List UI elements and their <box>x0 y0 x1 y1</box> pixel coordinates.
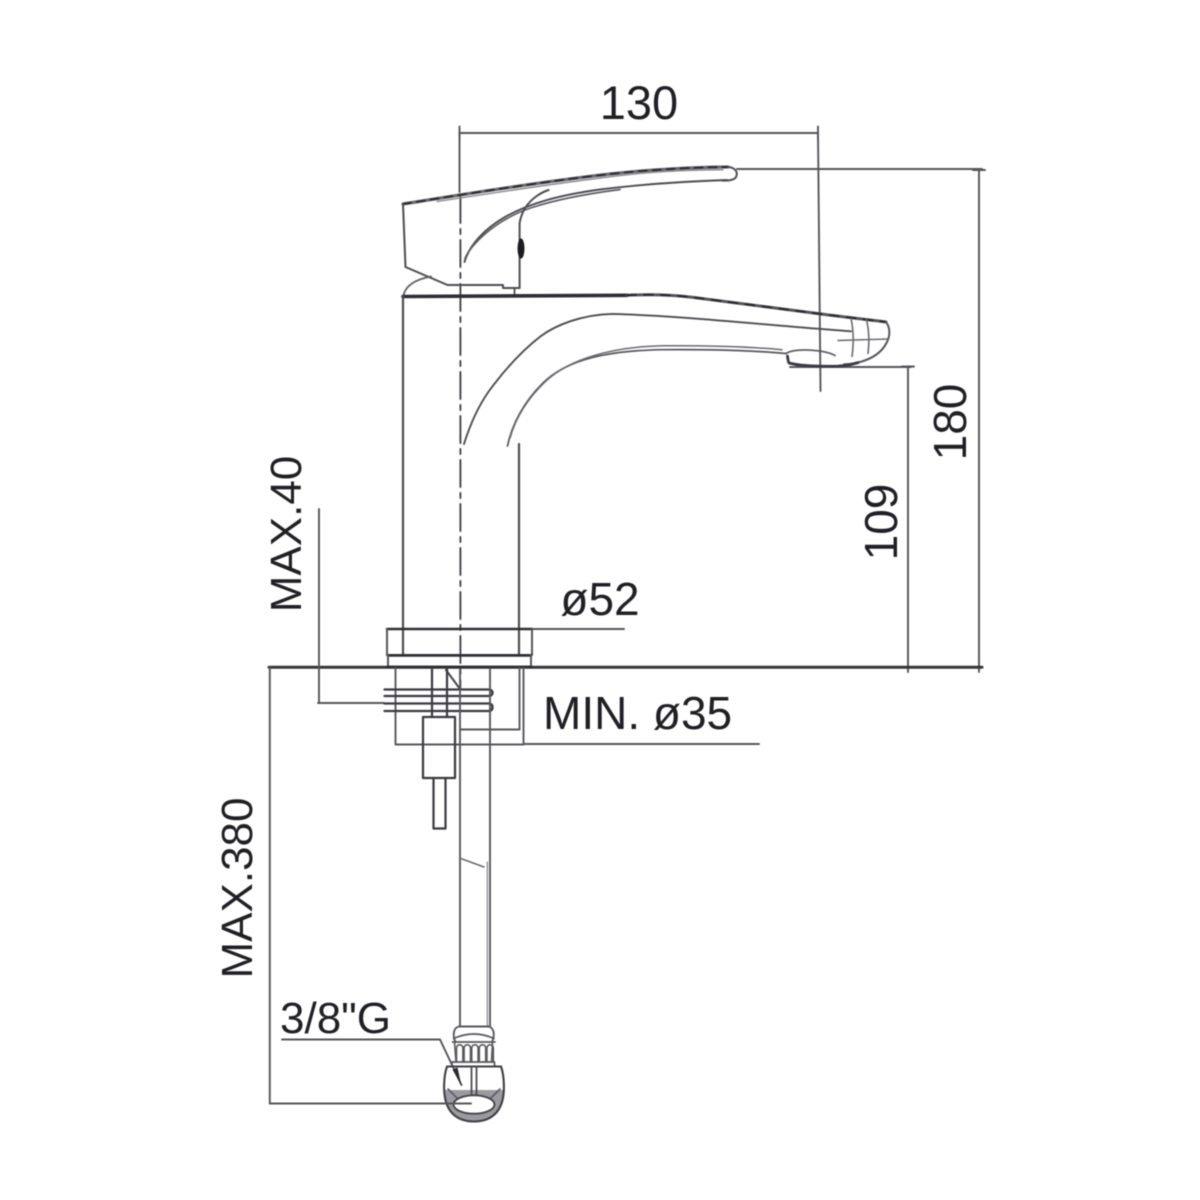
svg-text:109: 109 <box>855 484 907 561</box>
svg-text:MIN. ø35: MIN. ø35 <box>543 687 732 739</box>
svg-text:MAX.40: MAX.40 <box>262 456 311 613</box>
svg-text:3/8"G: 3/8"G <box>280 994 391 1043</box>
svg-text:ø52: ø52 <box>560 573 639 625</box>
svg-text:130: 130 <box>600 76 678 129</box>
svg-text:MAX.380: MAX.380 <box>213 798 262 979</box>
svg-text:180: 180 <box>924 384 976 461</box>
